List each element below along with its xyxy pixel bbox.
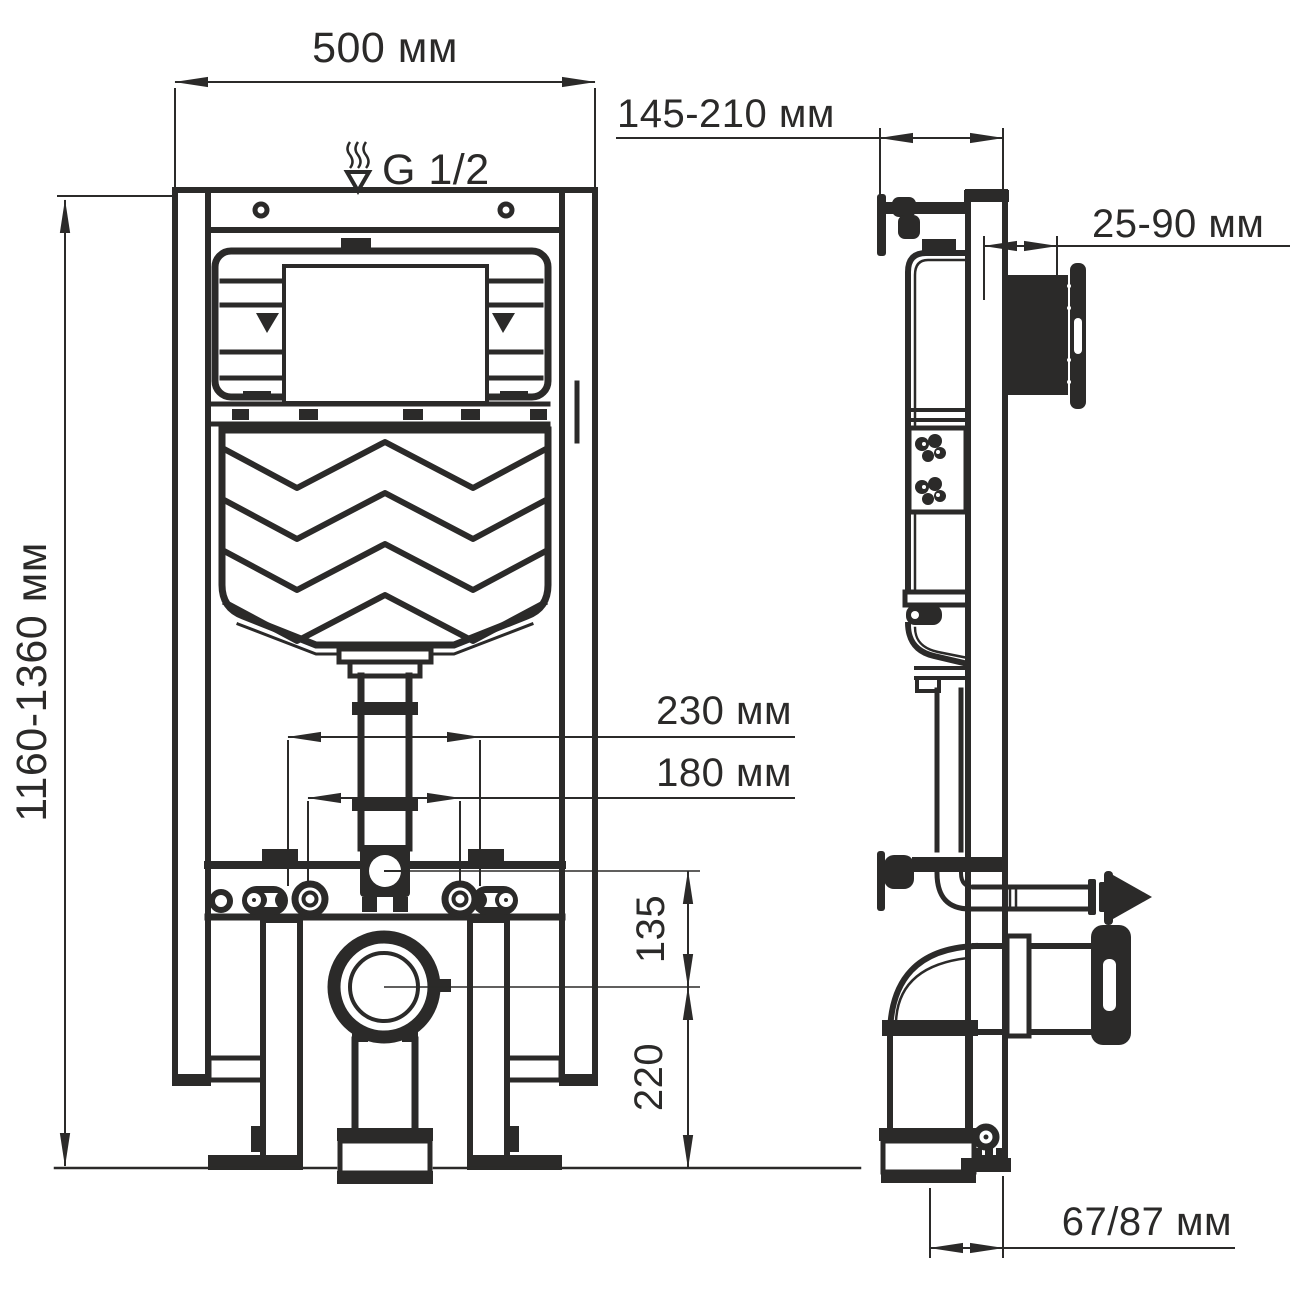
dim-drop-220-label: 220 — [627, 1043, 671, 1111]
installation-frame-drawing: 500 мм G 1/2 1160-1360 мм 145-210 мм — [0, 0, 1300, 1300]
water-inlet-icon — [347, 142, 369, 191]
waste-outlet — [334, 937, 451, 1184]
dim-height-1160-1360: 1160-1360 мм — [8, 196, 173, 1166]
fixing-ring-right — [445, 884, 475, 914]
stud-slot-right — [472, 886, 518, 915]
drawing-page: 500 мм G 1/2 1160-1360 мм 145-210 мм — [0, 0, 1300, 1300]
dim-depth-label: 145-210 мм — [617, 92, 835, 136]
dim-drop-220: 220 — [627, 987, 688, 1168]
fixing-hole-left — [212, 892, 230, 910]
access-window — [284, 266, 487, 403]
dim-drop-135-label: 135 — [629, 895, 673, 963]
side-rail — [964, 190, 1009, 1158]
cistern-tank — [222, 430, 548, 676]
fixing-ring-left — [295, 884, 325, 914]
dim-width-label: 500 мм — [312, 24, 458, 72]
dim-height-label: 1160-1360 мм — [8, 542, 56, 822]
water-inlet-label: G 1/2 — [382, 146, 490, 194]
dim-outlet-label: 67/87 мм — [1062, 1200, 1232, 1244]
crossbar — [208, 845, 562, 917]
flush-plate-shaft — [1006, 263, 1086, 409]
flush-pipe — [352, 676, 418, 848]
flush-cone — [1113, 875, 1152, 919]
dim-span-180-label: 180 мм — [656, 751, 792, 795]
dim-outlet-67-87: 67/87 мм — [930, 1176, 1235, 1258]
dim-plate-depth-label: 25-90 мм — [1092, 202, 1264, 246]
flush-unit — [213, 238, 548, 424]
dim-depth-145-210: 145-210 мм — [616, 92, 1003, 196]
side-tank — [905, 239, 970, 850]
side-view — [877, 190, 1152, 1183]
front-view — [55, 190, 860, 1184]
inlet-fitting — [360, 845, 410, 912]
dim-span-230-label: 230 мм — [656, 689, 792, 733]
stud-slot-left — [242, 886, 288, 915]
dim-water-inlet: G 1/2 — [347, 142, 490, 194]
